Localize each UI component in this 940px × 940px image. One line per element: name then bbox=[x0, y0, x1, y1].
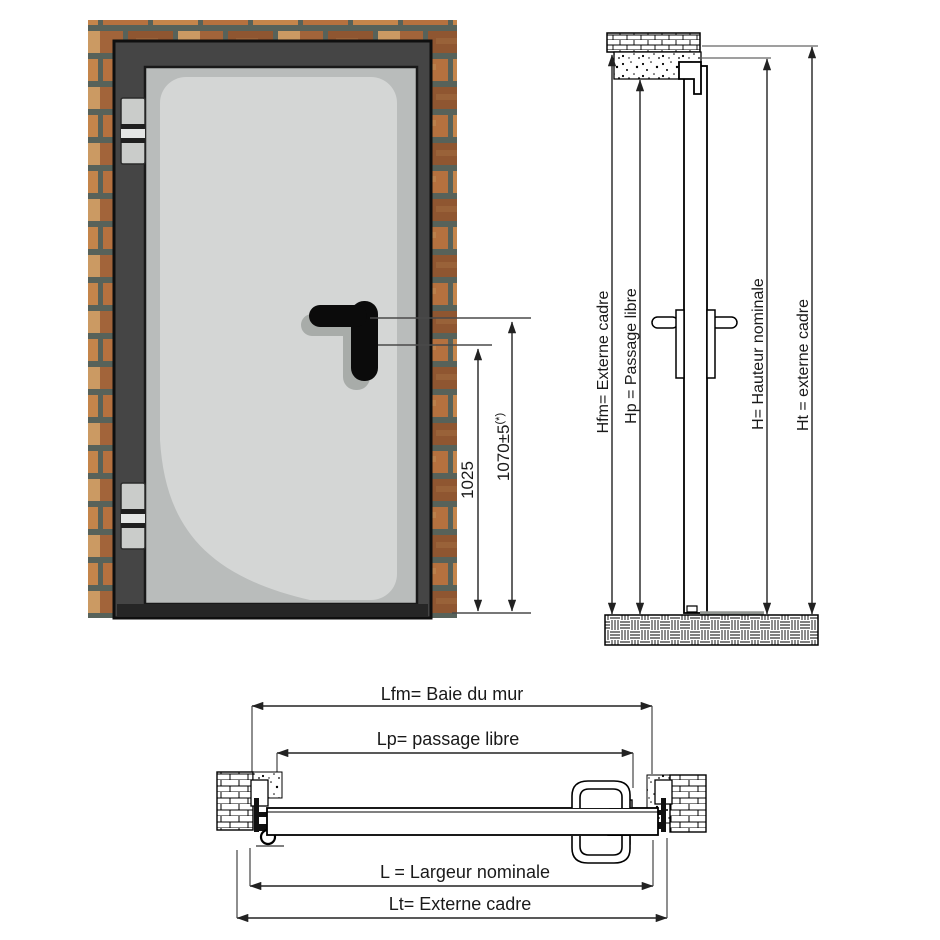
dimension-1070-label: 1070±5(*) bbox=[494, 413, 513, 481]
dimension-1070-value: 1070±5 bbox=[494, 425, 513, 482]
plan-view: Lfm= Baie du mur Lp= passage libre bbox=[217, 684, 706, 918]
dimension-l-label: L = Largeur nominale bbox=[380, 862, 550, 882]
section-door-leaf bbox=[684, 66, 707, 613]
dimension-hp-label: Hp = Passage libre bbox=[623, 288, 640, 424]
dimension-1070-note: (*) bbox=[494, 413, 506, 425]
diagram-canvas: 1025 1070±5(*) Hfm= E bbox=[0, 0, 940, 940]
hinge-top bbox=[121, 98, 145, 164]
door-sill bbox=[117, 604, 428, 617]
dimension-lt-label: Lt= Externe cadre bbox=[389, 894, 532, 914]
section-view: Hfm= Externe cadre Hp = Passage libre H=… bbox=[595, 33, 818, 645]
floor-slab bbox=[605, 615, 818, 645]
dimension-ht-label: Ht = externe cadre bbox=[795, 299, 812, 431]
plan-wall-left bbox=[217, 772, 253, 830]
plan-jamb-left bbox=[251, 780, 268, 806]
plan-wall-right bbox=[670, 775, 706, 832]
door-dimensions-diagram: 1025 1070±5(*) Hfm= E bbox=[0, 0, 940, 940]
front-view: 1025 1070±5(*) bbox=[88, 20, 531, 618]
dimension-lp-label: Lp= passage libre bbox=[377, 729, 520, 749]
plan-handle-bottom bbox=[572, 836, 630, 863]
dimension-h-label: H= Hauteur nominale bbox=[750, 278, 767, 430]
lintel-brick bbox=[607, 33, 700, 52]
dimension-hfm-label: Hfm= Externe cadre bbox=[595, 291, 612, 434]
dimension-1025-label: 1025 bbox=[458, 461, 477, 499]
plan-handle-top bbox=[572, 781, 632, 808]
dimension-lfm-label: Lfm= Baie du mur bbox=[381, 684, 524, 704]
hinge-bottom bbox=[121, 483, 145, 549]
